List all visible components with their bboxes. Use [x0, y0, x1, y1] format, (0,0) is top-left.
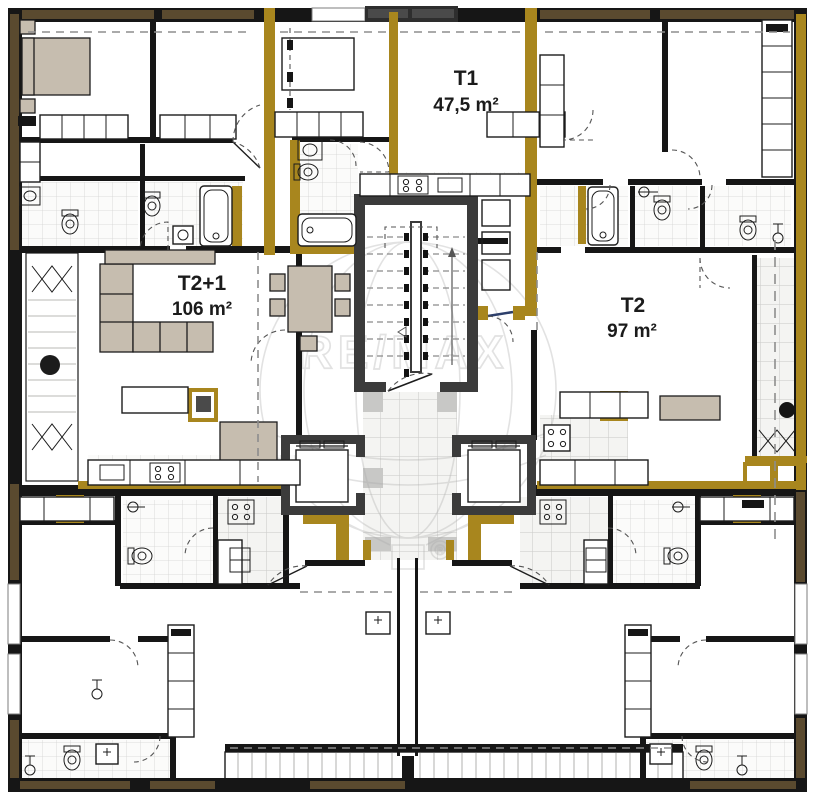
- t2-balcony-floor: [757, 258, 797, 458]
- desk-icon: [122, 387, 188, 413]
- wardrobe-icon: [18, 20, 794, 737]
- unit-area-t2plus1: 106 m²: [172, 299, 232, 320]
- unit-label-t1: T1: [454, 67, 479, 90]
- sideboard-icon: [105, 250, 215, 264]
- bed-icon: [20, 20, 90, 113]
- floor-plan-page: RE/MAX ®: [0, 0, 817, 800]
- balcony-left: [26, 253, 78, 481]
- unit-area-t1: 47,5 m²: [433, 95, 498, 116]
- elevator-shaft-left: [296, 441, 348, 502]
- elevator-shaft-right: [468, 441, 520, 502]
- unit-label-t2plus1: T2+1: [178, 272, 227, 295]
- unit-area-t2: 97 m²: [607, 321, 657, 342]
- stove-icon: [544, 425, 570, 451]
- balcony-table-icon: [779, 402, 795, 418]
- watermark-registered-mark: ®: [434, 542, 445, 559]
- floor-plan-drawing: RE/MAX ®: [0, 0, 817, 800]
- t2-hall-cabinet: [660, 396, 720, 420]
- unit-label-t2: T2: [621, 294, 646, 317]
